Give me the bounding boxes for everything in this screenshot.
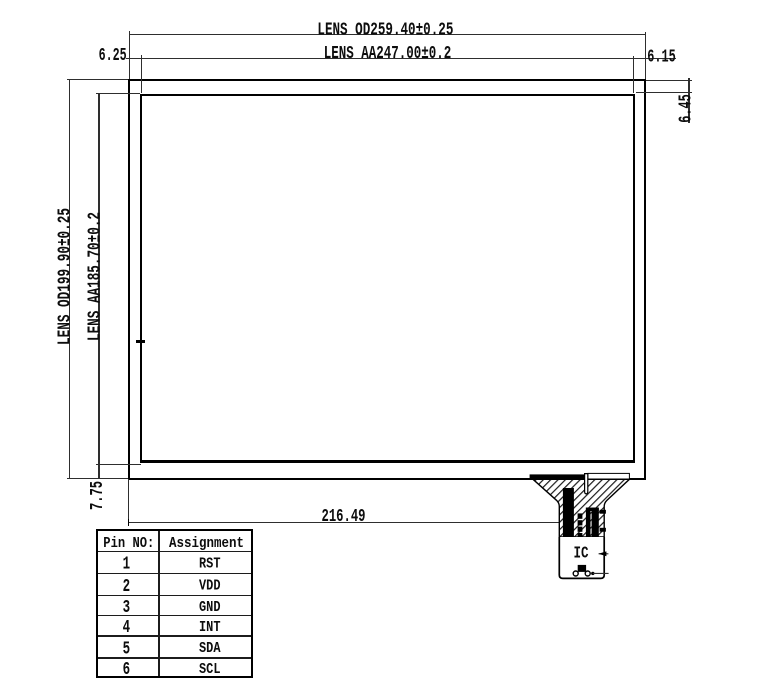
svg-text:LENS OD199.90±0.25: LENS OD199.90±0.25 (56, 208, 76, 345)
svg-text:5: 5 (123, 639, 131, 659)
svg-text:6.15: 6.15 (647, 48, 676, 68)
svg-text:SDA: SDA (199, 641, 221, 657)
svg-text:LENS AA247.00±0.2: LENS AA247.00±0.2 (324, 44, 452, 64)
svg-text:2: 2 (123, 577, 131, 597)
svg-text:SCL: SCL (199, 662, 221, 678)
svg-text:4: 4 (123, 618, 131, 638)
svg-text:RST: RST (199, 556, 221, 572)
svg-text:3: 3 (123, 598, 131, 618)
svg-text:IC: IC (574, 545, 589, 564)
svg-text:Pin NO:: Pin NO: (103, 535, 154, 552)
svg-text:LENS AA185.70±0.2: LENS AA185.70±0.2 (86, 212, 106, 341)
svg-text:LENS OD259.40±0.25: LENS OD259.40±0.25 (317, 20, 453, 40)
svg-text:INT: INT (199, 620, 221, 636)
svg-text:1: 1 (123, 555, 131, 575)
svg-text:7.75: 7.75 (88, 481, 108, 510)
svg-text:6.25: 6.25 (99, 46, 127, 66)
svg-text:GND: GND (199, 600, 221, 616)
svg-text:Assignment: Assignment (169, 535, 244, 552)
svg-text:6.45: 6.45 (677, 94, 697, 123)
svg-text:VDD: VDD (199, 579, 221, 595)
svg-text:6: 6 (123, 660, 131, 680)
svg-text:216.49: 216.49 (322, 507, 366, 527)
